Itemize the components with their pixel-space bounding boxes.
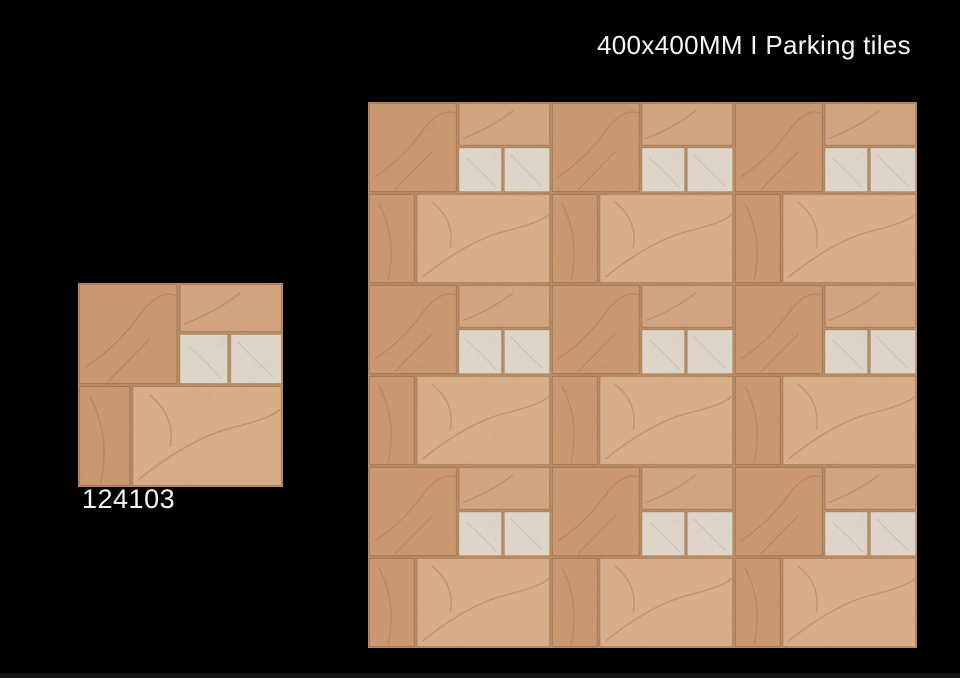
page-title: 400x400MM I Parking tiles [597,30,911,61]
tile-unit-instance [368,102,551,284]
tile-unit-instance [368,284,551,466]
product-code-label: 124103 [82,484,175,515]
single-tile-svg [78,283,283,487]
single-tile-sample [78,283,283,487]
bottom-edge-strip [0,673,960,678]
tile-unit-instance [551,102,734,284]
tiled-floor-svg [368,102,917,648]
tile-unit-instance [368,466,551,648]
catalog-page: 400x400MM I Parking tiles 124103 [0,0,960,678]
tile-unit-instance [734,466,917,648]
tile-unit-instance [734,102,917,284]
tile-unit-instance [551,284,734,466]
tile-unit-instance [78,283,283,487]
tile-unit-instance [734,284,917,466]
tile-unit-instance [551,466,734,648]
tiled-floor-preview [368,102,917,648]
